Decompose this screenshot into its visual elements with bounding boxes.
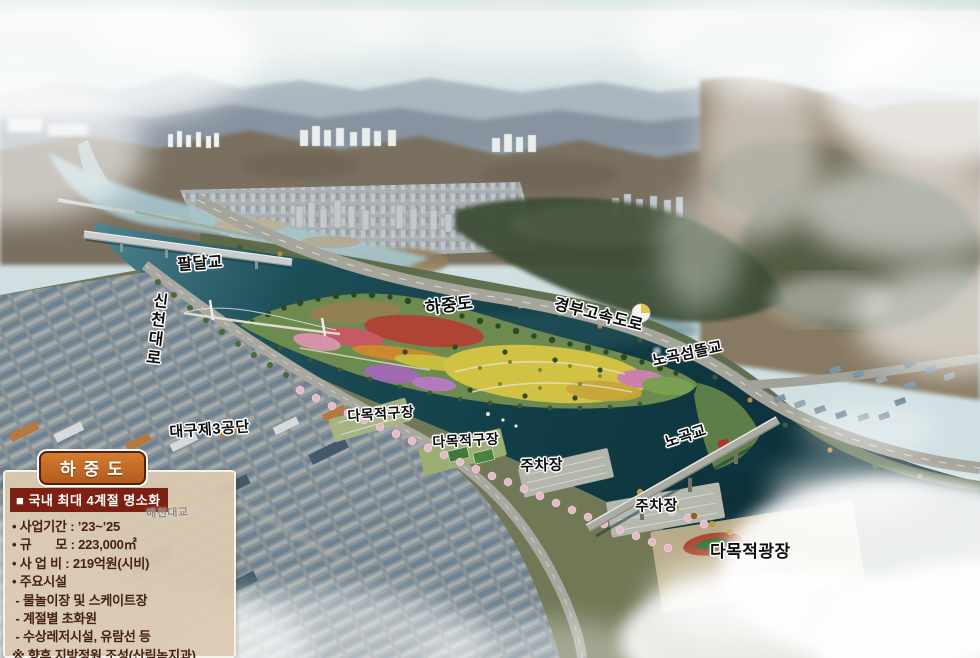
panel-line-budget: • 사 업 비 : 219억원(시비)	[12, 555, 234, 573]
map-label-maecheon-bridge: 매천대교	[146, 508, 189, 521]
panel-line-main-facilities: • 주요시설	[12, 573, 234, 591]
panel-line-seasonal-garden: - 계절별 초화원	[12, 610, 234, 628]
aerial-rendering-page: 팔달교 신천대로 하중도 경부고속도로 노곡섬뜰교 대구제3공단 다목적구장 다…	[0, 0, 980, 658]
panel-line-water-play-skate: - 물놀이장 및 스케이트장	[12, 592, 234, 610]
map-label-parking-1: 주차장	[520, 458, 563, 475]
panel-line-project-period: • 사업기간 : ’23~’25	[12, 518, 234, 536]
panel-lines: • 사업기간 : ’23~’25 • 규 모 : 223,000㎡ • 사 업 …	[12, 518, 234, 658]
panel-line-future-provincial-garden: ※ 향후 지방정원 조성(산림녹지과)	[12, 647, 234, 658]
map-label-parking-2: 주차장	[635, 498, 678, 514]
panel-headline: ■ 국내 최대 4계절 명소화	[10, 488, 168, 512]
island-name-badge: 하중도	[39, 451, 146, 485]
panel-line-scale: • 규 모 : 223,000㎡	[12, 536, 234, 554]
map-label-multipurpose-field-2: 다목적구장	[432, 431, 500, 449]
panel-line-water-leisure: - 수상레저시설, 유람선 등	[12, 628, 234, 646]
info-panel: 하중도 ■ 국내 최대 4계절 명소화 • 사업기간 : ’23~’25 • 규…	[3, 470, 236, 658]
map-label-paldal-bridge: 팔달교	[177, 255, 224, 275]
map-label-multipurpose-plaza: 다목적광장	[710, 543, 791, 561]
